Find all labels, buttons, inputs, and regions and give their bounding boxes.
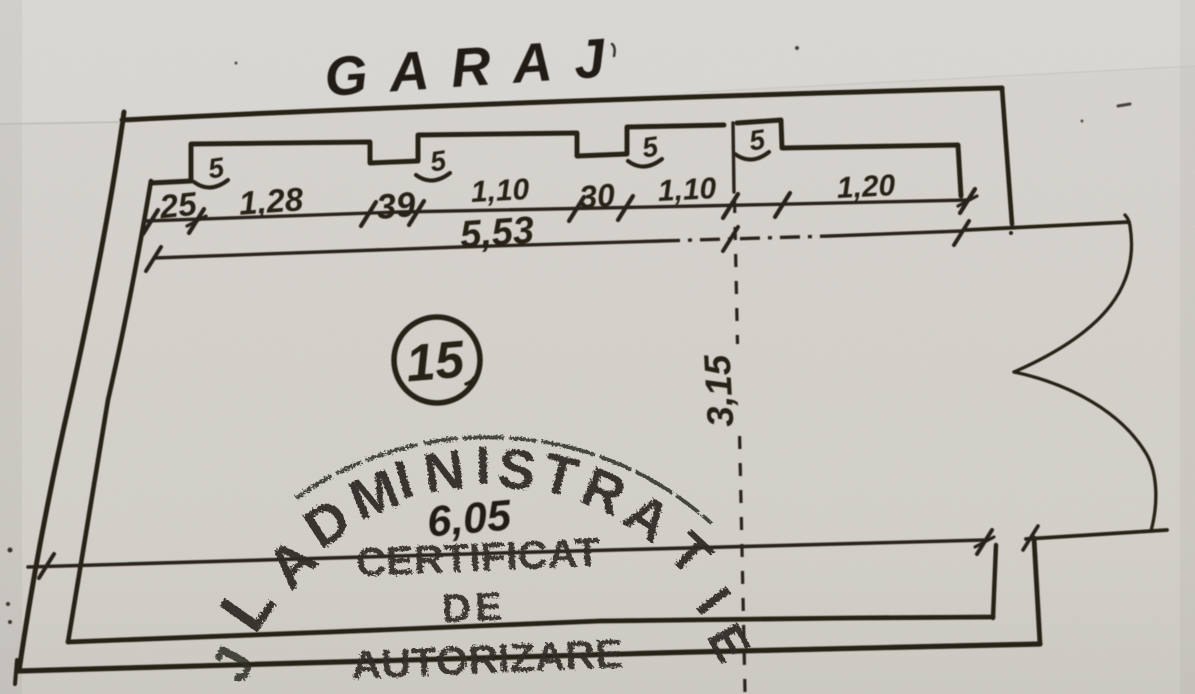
svg-text:15: 15 <box>404 330 468 393</box>
svg-text:1,10: 1,10 <box>657 172 717 208</box>
svg-text:1,10: 1,10 <box>470 173 530 209</box>
svg-text:5,53: 5,53 <box>459 209 536 256</box>
svg-text:I: I <box>475 436 491 496</box>
svg-text:1,20: 1,20 <box>836 169 896 205</box>
svg-text:30: 30 <box>578 176 617 215</box>
svg-text:25: 25 <box>157 185 199 226</box>
svg-text:39: 39 <box>375 185 418 227</box>
svg-text:3,15: 3,15 <box>697 353 742 428</box>
svg-text:1,28: 1,28 <box>238 180 305 221</box>
svg-text:DE: DE <box>441 585 506 632</box>
svg-text:S: S <box>495 436 539 503</box>
